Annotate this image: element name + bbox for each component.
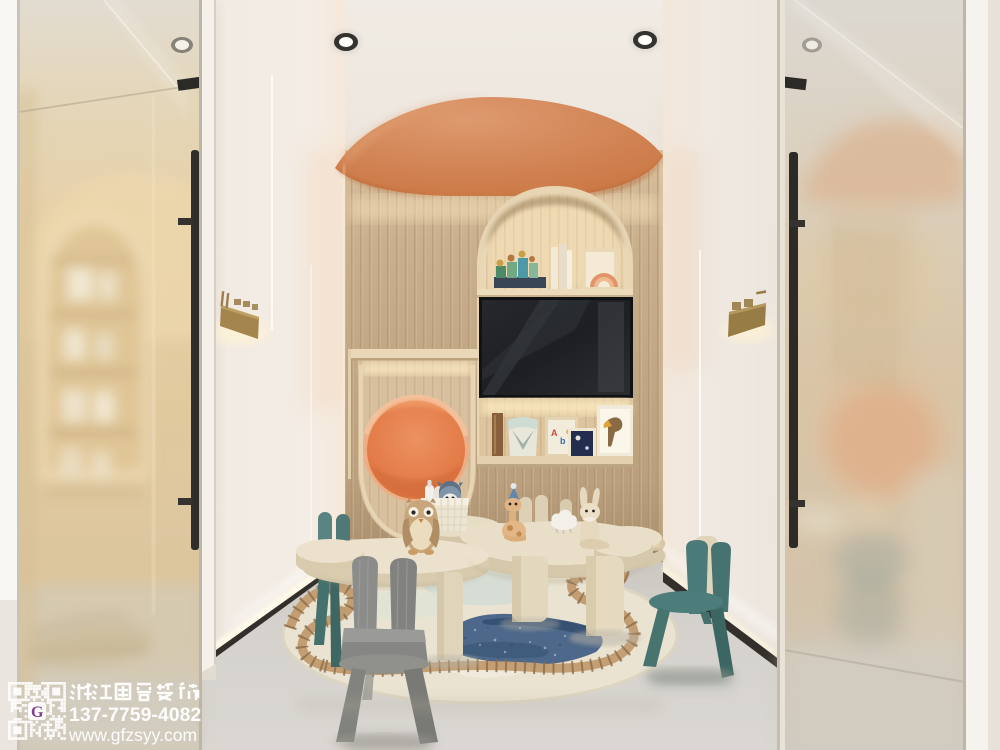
svg-text:G: G xyxy=(31,704,44,721)
svg-text:137-7759-4082: 137-7759-4082 xyxy=(69,704,201,726)
svg-text:A: A xyxy=(551,428,558,438)
svg-text:www.gfzsyy.com: www.gfzsyy.com xyxy=(68,725,197,745)
svg-text:b: b xyxy=(560,436,566,446)
